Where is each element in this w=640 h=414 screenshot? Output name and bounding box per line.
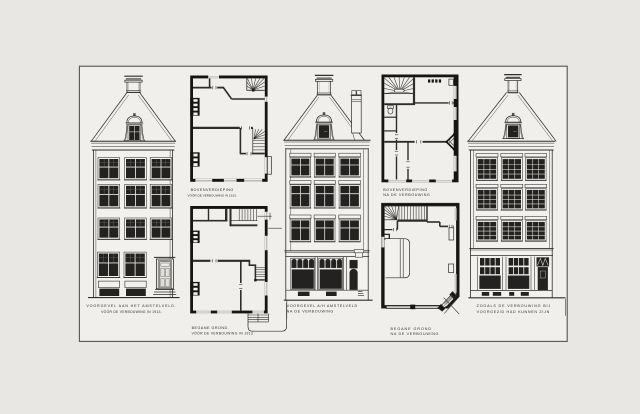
svg-text:NA DE VERBOUWING: NA DE VERBOUWING (391, 332, 440, 336)
svg-text:VÓÓR DE VERBOUWING IN 1913: VÓÓR DE VERBOUWING IN 1913 (192, 331, 254, 336)
svg-text:NA DE VERBOUWING: NA DE VERBOUWING (287, 310, 334, 314)
svg-text:BOVENVERDIEPING: BOVENVERDIEPING (383, 188, 428, 192)
svg-text:ZOOALS DE VERBOUWING BIJ: ZOOALS DE VERBOUWING BIJ (477, 304, 551, 308)
svg-text:VOORGEZID HAD KUNNEN ZIJN: VOORGEZID HAD KUNNEN ZIJN (477, 310, 550, 314)
svg-text:VÓÓR DE VERBOUWING IN 1913.: VÓÓR DE VERBOUWING IN 1913. (101, 309, 162, 314)
svg-text:VOORGEVEL A/H AMSTELVELD: VOORGEVEL A/H AMSTELVELD (287, 304, 358, 308)
svg-text:BOVENVERDIEPING: BOVENVERDIEPING (191, 188, 234, 192)
svg-text:VÓÓR DE VERBOUWING IN 1913.: VÓÓR DE VERBOUWING IN 1913. (188, 192, 237, 197)
svg-text:BEGANE GROND: BEGANE GROND (391, 327, 433, 331)
svg-text:VOORGEVEL AAN HET AMSTELVELD.: VOORGEVEL AAN HET AMSTELVELD. (86, 304, 176, 308)
svg-text:BEGANE GROND.: BEGANE GROND. (192, 326, 230, 330)
svg-text:NA DE VERBOUWING: NA DE VERBOUWING (383, 193, 430, 197)
